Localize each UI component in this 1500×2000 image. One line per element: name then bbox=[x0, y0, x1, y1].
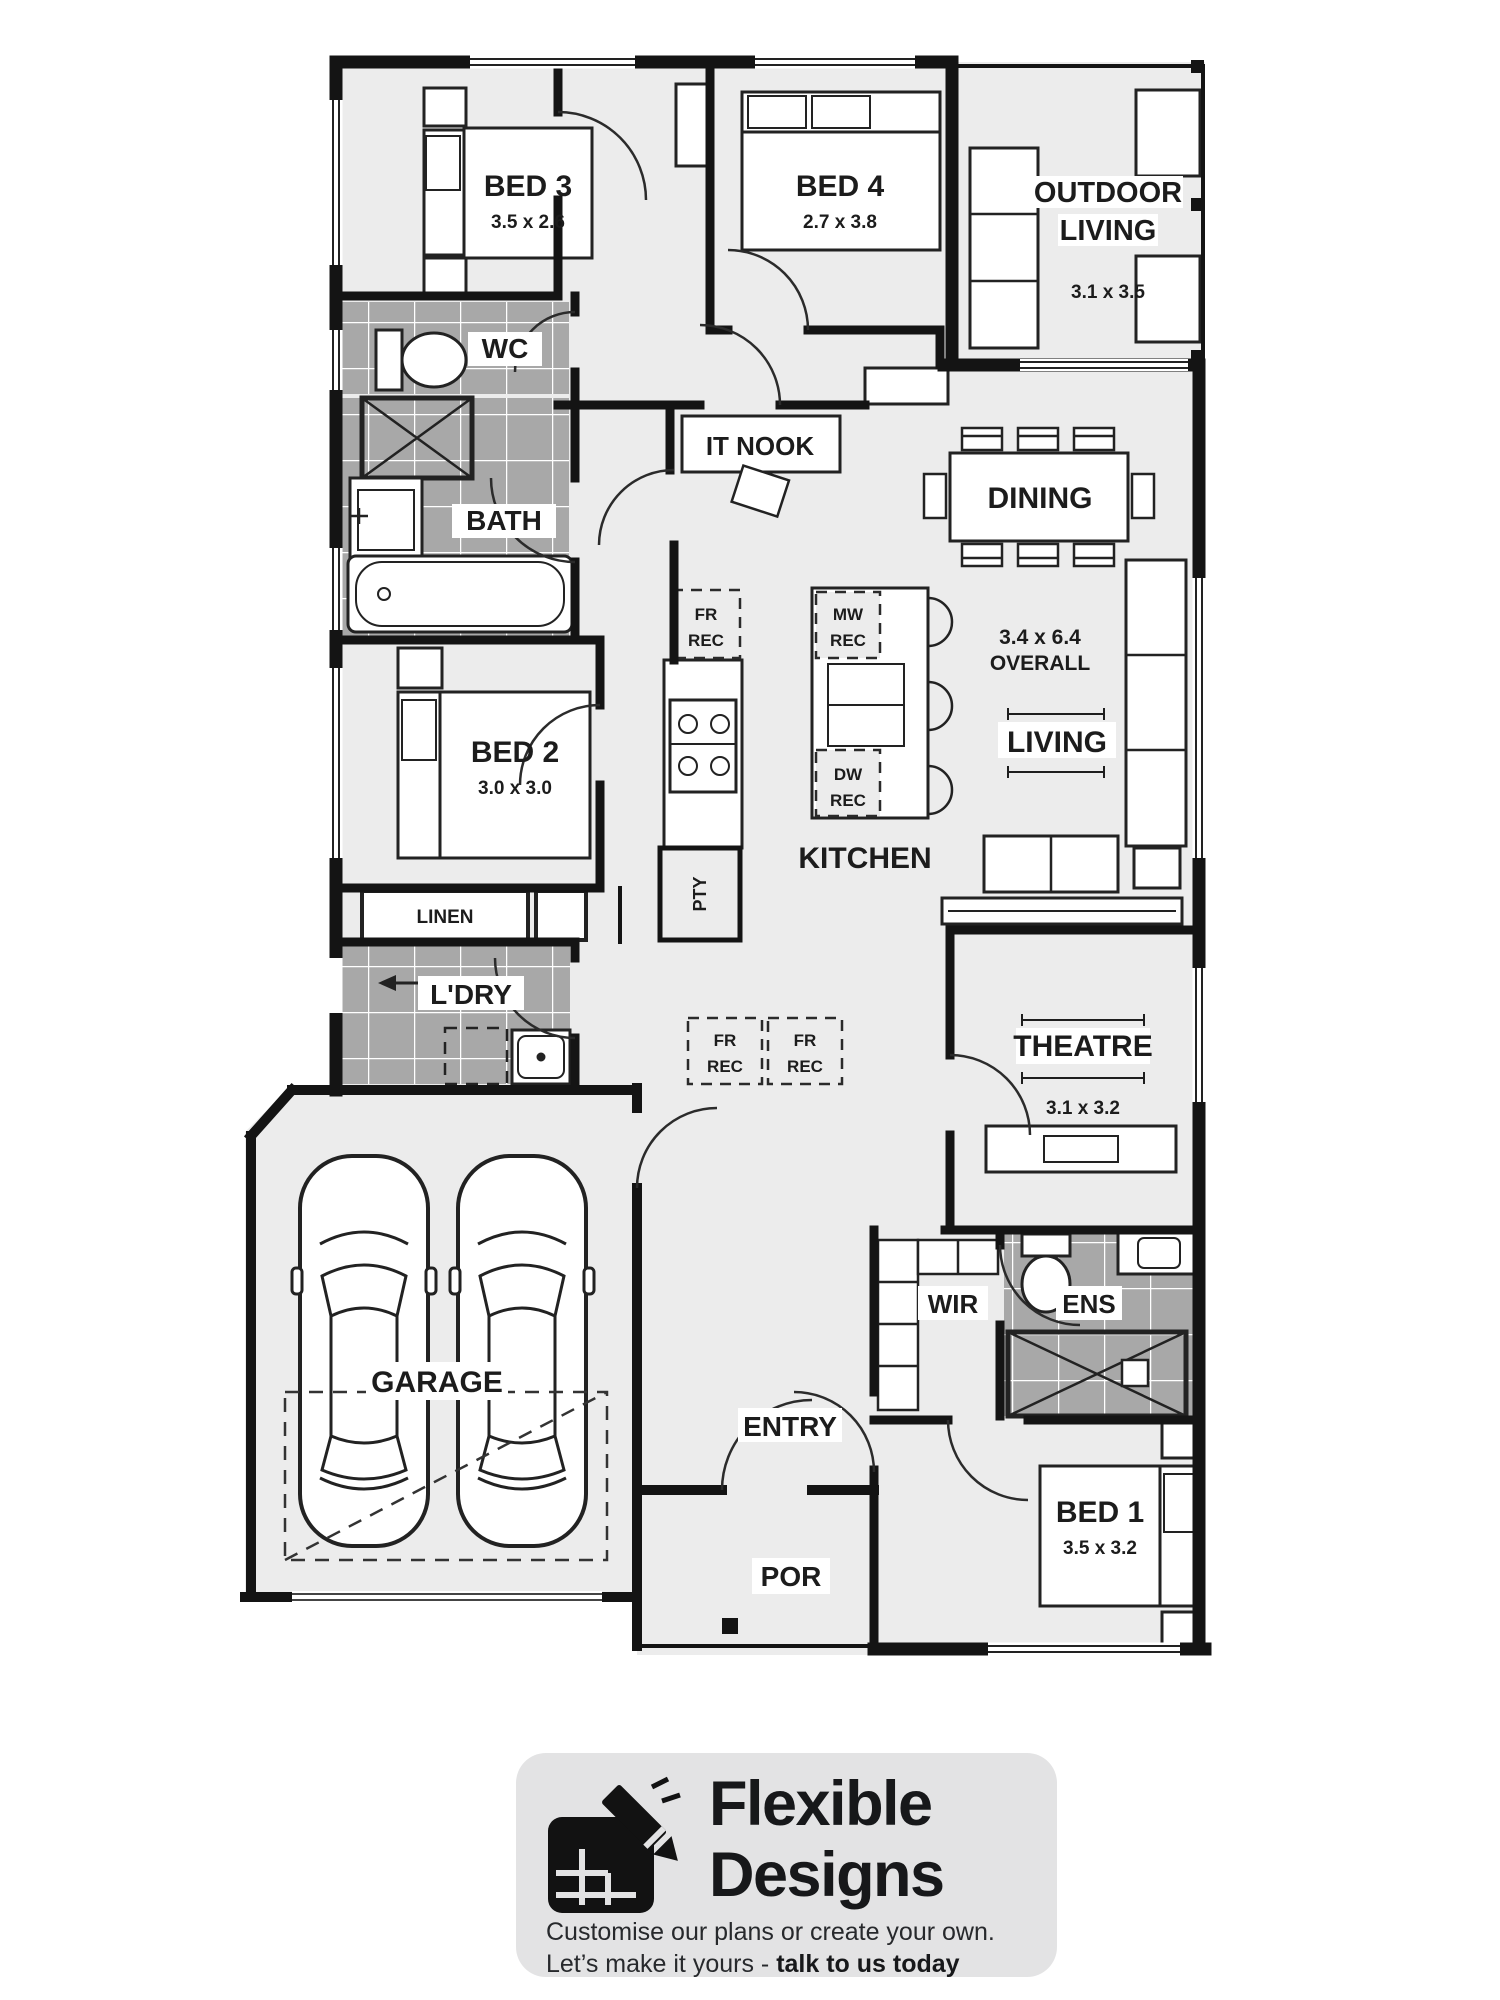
tagline-line1: Customise our plans or create your own. bbox=[546, 1916, 995, 1948]
garage-car-left bbox=[292, 1156, 436, 1546]
floor-plan: BED 3 3.5 x 2.6 BED 4 2.7 x 3.8 OUTDOOR … bbox=[0, 0, 1500, 1700]
wc-toilet bbox=[376, 330, 466, 390]
window bbox=[330, 330, 343, 390]
theatre-dim: 3.1 x 3.2 bbox=[1046, 1098, 1120, 1119]
outdoor-living-label-line2: LIVING bbox=[1060, 215, 1157, 247]
bed1-label: BED 1 bbox=[1056, 1496, 1144, 1529]
window bbox=[330, 668, 343, 858]
theatre-label: THEATRE bbox=[1013, 1030, 1152, 1063]
it-nook-label: IT NOOK bbox=[706, 431, 815, 461]
brand-title-line2: Designs bbox=[709, 1840, 944, 1911]
hall-cupboard bbox=[865, 368, 948, 404]
pantry-label: PTY bbox=[690, 876, 710, 911]
laundry-tub bbox=[512, 1030, 570, 1084]
hall-robe bbox=[676, 84, 708, 166]
porch-post bbox=[722, 1618, 738, 1634]
bed2-dim: 3.0 x 3.0 bbox=[478, 778, 552, 799]
dining-label: DINING bbox=[988, 482, 1093, 515]
laundry-label: L'DRY bbox=[430, 979, 512, 1010]
bed4-label: BED 4 bbox=[796, 170, 885, 203]
fridge-recess-kitchen-label-line2: REC bbox=[688, 631, 724, 650]
fridge-recess-hall-2-label-line1: FR bbox=[794, 1031, 817, 1050]
ens-label: ENS bbox=[1062, 1289, 1115, 1319]
bed4-dim: 2.7 x 3.8 bbox=[803, 212, 877, 233]
cta-bold: talk to us today bbox=[776, 1950, 959, 1978]
microwave-recess-label-line2: REC bbox=[830, 631, 866, 650]
brand-title-line1: Flexible bbox=[709, 1769, 944, 1840]
bathtub bbox=[348, 556, 572, 632]
outdoor-living-dim: 3.1 x 3.5 bbox=[1071, 282, 1145, 303]
cta-prefix: Let’s make it yours - bbox=[546, 1950, 776, 1978]
bed2-label: BED 2 bbox=[471, 736, 559, 769]
sliding-door bbox=[1020, 359, 1188, 371]
entry-label: ENTRY bbox=[743, 1411, 837, 1442]
living-overall-dim: 3.4 x 6.4 bbox=[999, 626, 1081, 649]
fridge-recess-hall-1-label-line2: REC bbox=[707, 1057, 743, 1076]
bed1-dim: 3.5 x 3.2 bbox=[1063, 1538, 1137, 1559]
outdoor-post bbox=[1191, 60, 1204, 73]
wir-label: WIR bbox=[928, 1289, 979, 1319]
fridge-recess-hall-2-label-line2: REC bbox=[787, 1057, 823, 1076]
brand-title: Flexible Designs bbox=[709, 1769, 944, 1911]
dishwasher-recess-label-line1: DW bbox=[834, 765, 863, 784]
window bbox=[330, 100, 343, 265]
garage-label: GARAGE bbox=[371, 1366, 503, 1399]
wc-label: WC bbox=[482, 333, 529, 364]
kitchen-label: KITCHEN bbox=[798, 842, 931, 875]
living-label: LIVING bbox=[1007, 726, 1107, 759]
outdoor-post bbox=[1191, 198, 1204, 211]
window bbox=[755, 56, 915, 69]
dishwasher-recess-label-line2: REC bbox=[830, 791, 866, 810]
garage-door bbox=[292, 1591, 602, 1603]
fridge-recess-hall-1-label-line1: FR bbox=[714, 1031, 737, 1050]
microwave-recess-label-line1: MW bbox=[833, 605, 864, 624]
outdoor-post bbox=[1191, 350, 1204, 363]
kitchen-bench bbox=[664, 660, 742, 848]
bath-vanity bbox=[350, 478, 422, 562]
bed3-dim: 3.5 x 2.6 bbox=[491, 212, 565, 233]
living-overall-word: OVERALL bbox=[990, 652, 1091, 675]
bed3-label: BED 3 bbox=[484, 170, 572, 203]
window bbox=[330, 548, 343, 630]
floor-plan-page: BED 3 3.5 x 2.6 BED 4 2.7 x 3.8 OUTDOOR … bbox=[0, 0, 1500, 2000]
fridge-recess-kitchen-label-line1: FR bbox=[695, 605, 718, 624]
tagline-line2: Let’s make it yours - talk to us today bbox=[546, 1948, 995, 1980]
garage-car-right bbox=[450, 1156, 594, 1546]
brand-tagline: Customise our plans or create your own. … bbox=[546, 1916, 995, 1980]
porch-label: POR bbox=[761, 1561, 822, 1592]
window bbox=[470, 56, 635, 69]
flexible-designs-logo-icon bbox=[546, 1775, 686, 1915]
bath-label: BATH bbox=[466, 505, 542, 536]
linen-label: LINEN bbox=[417, 907, 474, 928]
window bbox=[1193, 968, 1206, 1102]
window bbox=[1193, 578, 1206, 858]
window bbox=[988, 1643, 1180, 1656]
brand-footer: Flexible Designs Customise our plans or … bbox=[516, 1753, 1057, 1977]
outdoor-living-label-line1: OUTDOOR bbox=[1034, 177, 1182, 209]
linen-cupboard bbox=[362, 891, 586, 940]
